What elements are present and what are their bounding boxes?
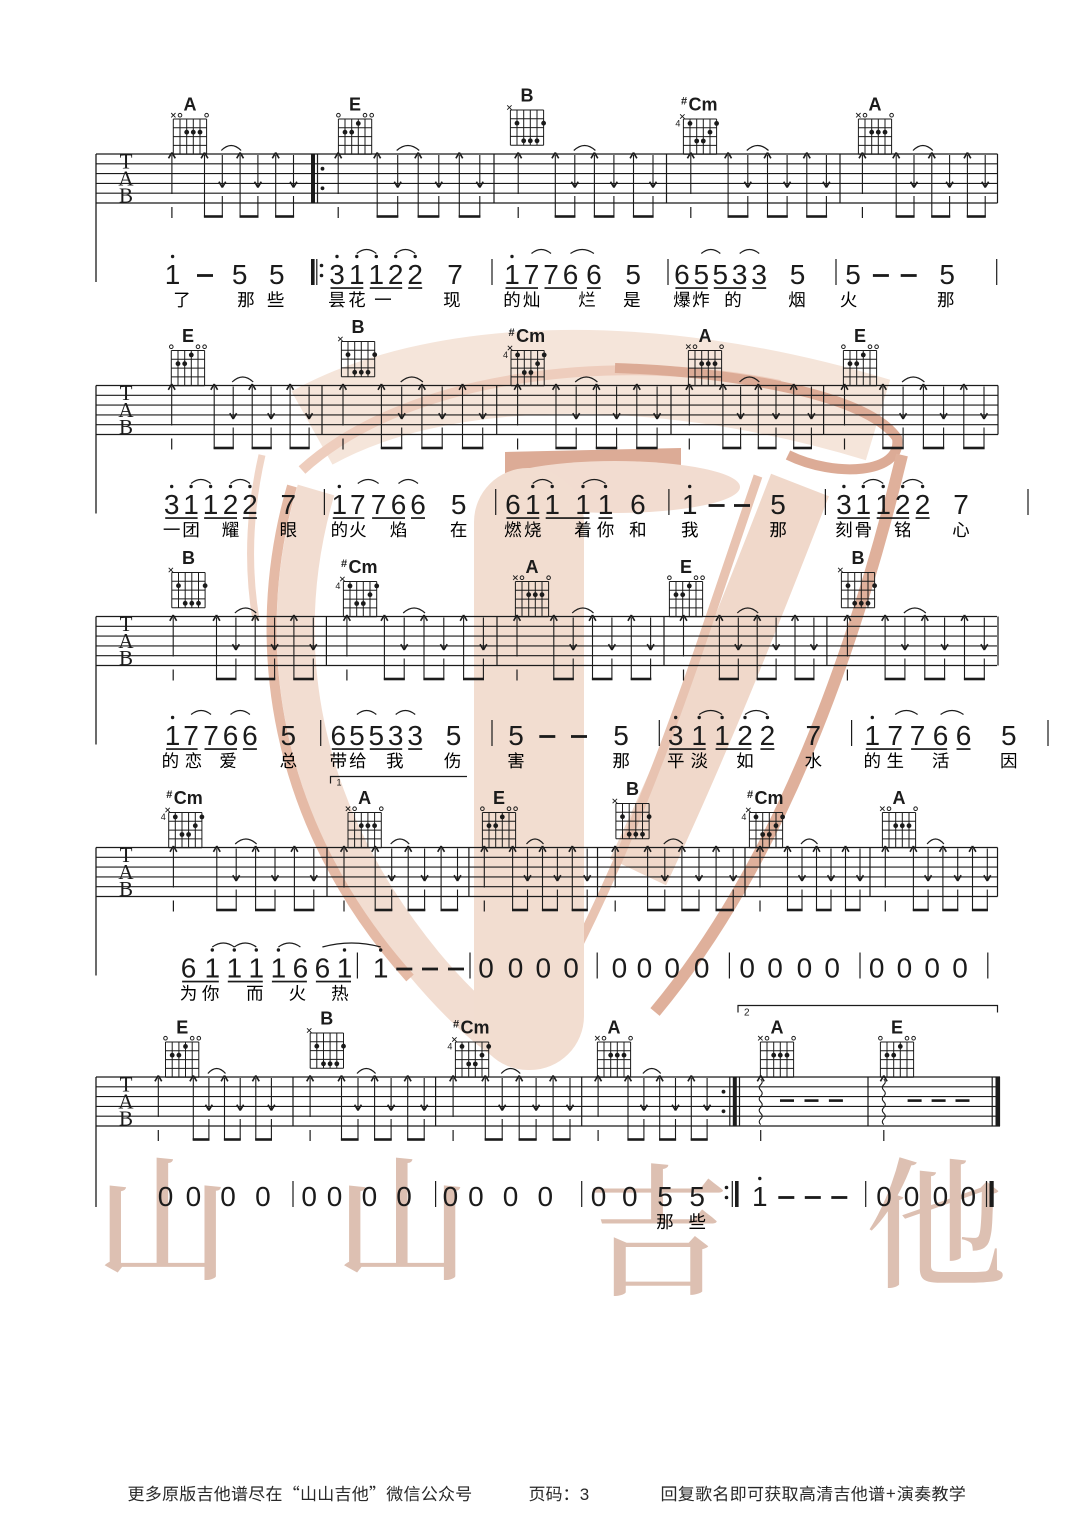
- svg-text:7: 7: [524, 259, 540, 290]
- svg-text:#: #: [681, 96, 687, 108]
- svg-text:5: 5: [657, 1181, 673, 1212]
- svg-text:1: 1: [249, 953, 265, 984]
- svg-text:0: 0: [503, 1181, 519, 1212]
- svg-text:4: 4: [447, 1041, 452, 1051]
- svg-text:0: 0: [952, 953, 968, 984]
- svg-text:3: 3: [164, 489, 180, 520]
- svg-text:Cm: Cm: [348, 557, 377, 577]
- svg-text:E: E: [680, 557, 692, 577]
- svg-text:0: 0: [637, 953, 653, 984]
- svg-text:3: 3: [407, 720, 423, 751]
- svg-text:2: 2: [242, 489, 258, 520]
- svg-text:0: 0: [468, 1181, 484, 1212]
- svg-text:0: 0: [664, 953, 680, 984]
- svg-text:5: 5: [845, 259, 861, 290]
- svg-text:7: 7: [806, 720, 822, 751]
- svg-text:A: A: [358, 788, 371, 808]
- svg-text:6: 6: [586, 259, 602, 290]
- svg-text:6: 6: [391, 489, 407, 520]
- svg-text:6: 6: [331, 720, 347, 751]
- svg-text:5: 5: [281, 720, 297, 751]
- svg-text:5: 5: [770, 489, 786, 520]
- svg-text:Cm: Cm: [754, 788, 783, 808]
- svg-text:0: 0: [478, 953, 494, 984]
- svg-text:1: 1: [682, 489, 698, 520]
- svg-text:0: 0: [396, 1181, 412, 1212]
- svg-text:1: 1: [875, 489, 891, 520]
- svg-text:1: 1: [752, 1181, 768, 1212]
- svg-text:E: E: [854, 326, 866, 346]
- svg-text:5: 5: [446, 720, 462, 751]
- svg-text:0: 0: [220, 1181, 236, 1212]
- svg-text:B: B: [182, 548, 195, 568]
- svg-text:Cm: Cm: [174, 788, 203, 808]
- svg-text:0: 0: [694, 953, 710, 984]
- svg-text:2: 2: [915, 489, 931, 520]
- svg-text:2: 2: [388, 259, 404, 290]
- svg-text:5: 5: [689, 1181, 705, 1212]
- svg-text:6: 6: [933, 720, 949, 751]
- svg-text:5: 5: [694, 259, 710, 290]
- svg-text:1: 1: [349, 259, 365, 290]
- svg-text:1: 1: [165, 720, 181, 751]
- svg-text:0: 0: [869, 953, 885, 984]
- svg-text:4: 4: [675, 118, 680, 128]
- svg-text:5: 5: [349, 720, 365, 751]
- svg-text:6: 6: [242, 720, 258, 751]
- svg-text:3: 3: [388, 720, 404, 751]
- svg-text:0: 0: [924, 953, 940, 984]
- svg-text:5: 5: [625, 259, 641, 290]
- svg-text:0: 0: [443, 1181, 459, 1212]
- svg-text:1: 1: [575, 489, 591, 520]
- svg-text:1: 1: [205, 953, 221, 984]
- svg-text:1: 1: [691, 720, 707, 751]
- svg-text:E: E: [891, 1018, 903, 1038]
- svg-text:7: 7: [203, 720, 219, 751]
- svg-text:4: 4: [503, 350, 508, 360]
- svg-text:3: 3: [836, 489, 852, 520]
- svg-text:E: E: [493, 788, 505, 808]
- svg-text:7: 7: [371, 489, 387, 520]
- svg-text:0: 0: [824, 953, 840, 984]
- svg-text:B: B: [352, 317, 365, 337]
- svg-text:5: 5: [232, 259, 248, 290]
- svg-text:B: B: [320, 1009, 333, 1029]
- svg-text:6: 6: [410, 489, 426, 520]
- svg-text:5: 5: [713, 259, 729, 290]
- svg-text:1: 1: [332, 489, 348, 520]
- svg-text:2: 2: [760, 720, 776, 751]
- svg-text:0: 0: [301, 1181, 317, 1212]
- svg-text:B: B: [119, 415, 133, 439]
- svg-text:0: 0: [904, 1181, 920, 1212]
- svg-text:#: #: [509, 327, 515, 339]
- svg-text:1: 1: [369, 259, 385, 290]
- svg-text:E: E: [349, 95, 361, 115]
- svg-text:0: 0: [186, 1181, 202, 1212]
- svg-text:1: 1: [337, 953, 353, 984]
- svg-text:0: 0: [158, 1181, 174, 1212]
- svg-text:5: 5: [1001, 720, 1017, 751]
- svg-text:+: +: [886, 1484, 896, 1503]
- svg-text:0: 0: [622, 1181, 638, 1212]
- svg-text:6: 6: [505, 489, 521, 520]
- svg-text:A: A: [526, 557, 539, 577]
- svg-text:4: 4: [161, 812, 166, 822]
- svg-text:4: 4: [741, 812, 746, 822]
- svg-text:7: 7: [953, 489, 969, 520]
- svg-text:2: 2: [407, 259, 423, 290]
- svg-text:5: 5: [369, 720, 385, 751]
- svg-text:1: 1: [183, 489, 199, 520]
- svg-text:#: #: [166, 789, 172, 801]
- svg-text:5: 5: [613, 720, 629, 751]
- svg-text:3: 3: [329, 259, 345, 290]
- svg-text:7: 7: [350, 489, 366, 520]
- svg-text:1: 1: [504, 259, 520, 290]
- svg-text:0: 0: [739, 953, 755, 984]
- svg-text:0: 0: [767, 953, 783, 984]
- svg-text:Cm: Cm: [516, 326, 545, 346]
- svg-text:B: B: [626, 779, 639, 799]
- svg-text:5: 5: [451, 489, 467, 520]
- svg-text:B: B: [119, 646, 133, 670]
- svg-text:5: 5: [269, 259, 285, 290]
- svg-text:A: A: [893, 788, 906, 808]
- svg-text:3: 3: [580, 1485, 589, 1504]
- svg-text:7: 7: [543, 259, 559, 290]
- svg-text:5: 5: [939, 259, 955, 290]
- svg-text:7: 7: [447, 259, 463, 290]
- svg-text:6: 6: [956, 720, 972, 751]
- svg-text:0: 0: [538, 1181, 554, 1212]
- svg-text:A: A: [608, 1018, 621, 1038]
- svg-text:#: #: [341, 558, 347, 570]
- svg-text:3: 3: [751, 259, 767, 290]
- svg-text:1: 1: [598, 489, 614, 520]
- svg-text:6: 6: [674, 259, 690, 290]
- svg-text:2: 2: [737, 720, 753, 751]
- svg-text:7: 7: [183, 720, 199, 751]
- svg-text:0: 0: [362, 1181, 378, 1212]
- svg-text:A: A: [771, 1018, 784, 1038]
- svg-text:Cm: Cm: [688, 95, 717, 115]
- svg-text:1: 1: [271, 953, 287, 984]
- svg-text:2: 2: [223, 489, 239, 520]
- svg-text:5: 5: [790, 259, 806, 290]
- svg-text:0: 0: [797, 953, 813, 984]
- svg-text:1: 1: [203, 489, 219, 520]
- svg-text:0: 0: [897, 953, 913, 984]
- svg-text:1: 1: [544, 489, 560, 520]
- svg-text:B: B: [119, 1107, 133, 1131]
- svg-text:A: A: [869, 95, 882, 115]
- svg-text:#: #: [453, 1019, 459, 1031]
- svg-text:6: 6: [630, 489, 646, 520]
- svg-text:B: B: [521, 86, 534, 106]
- svg-text:1: 1: [227, 953, 243, 984]
- svg-text:Cm: Cm: [460, 1018, 489, 1038]
- svg-text:0: 0: [255, 1181, 271, 1212]
- svg-text:0: 0: [591, 1181, 607, 1212]
- svg-text:2: 2: [744, 1008, 750, 1019]
- svg-text:B: B: [119, 877, 133, 901]
- svg-text:0: 0: [327, 1181, 343, 1212]
- svg-text:2: 2: [895, 489, 911, 520]
- svg-text:0: 0: [612, 953, 628, 984]
- svg-text:1: 1: [856, 489, 872, 520]
- svg-text:5: 5: [508, 720, 524, 751]
- svg-text:0: 0: [508, 953, 524, 984]
- svg-text:1: 1: [865, 720, 881, 751]
- svg-text:0: 0: [961, 1181, 977, 1212]
- svg-text:7: 7: [281, 489, 297, 520]
- svg-text:3: 3: [668, 720, 684, 751]
- svg-text:1: 1: [373, 953, 389, 984]
- svg-text:4: 4: [335, 581, 340, 591]
- svg-text:6: 6: [181, 953, 197, 984]
- svg-text:6: 6: [223, 720, 239, 751]
- svg-text:0: 0: [933, 1181, 949, 1212]
- svg-text:B: B: [852, 548, 865, 568]
- svg-text:#: #: [747, 789, 753, 801]
- svg-text:6: 6: [563, 259, 579, 290]
- svg-text:1: 1: [165, 259, 181, 290]
- svg-text:3: 3: [732, 259, 748, 290]
- svg-text:7: 7: [910, 720, 926, 751]
- svg-text:0: 0: [536, 953, 552, 984]
- svg-text:B: B: [119, 184, 133, 208]
- svg-text:0: 0: [563, 953, 579, 984]
- svg-text:E: E: [176, 1018, 188, 1038]
- svg-text:0: 0: [876, 1181, 892, 1212]
- svg-text:1: 1: [714, 720, 730, 751]
- svg-text:6: 6: [315, 953, 331, 984]
- svg-text:1: 1: [337, 778, 342, 788]
- svg-text:E: E: [182, 326, 194, 346]
- svg-text:A: A: [184, 95, 197, 115]
- svg-text:A: A: [699, 326, 712, 346]
- svg-text:7: 7: [887, 720, 903, 751]
- svg-text:6: 6: [293, 953, 309, 984]
- svg-text:1: 1: [525, 489, 541, 520]
